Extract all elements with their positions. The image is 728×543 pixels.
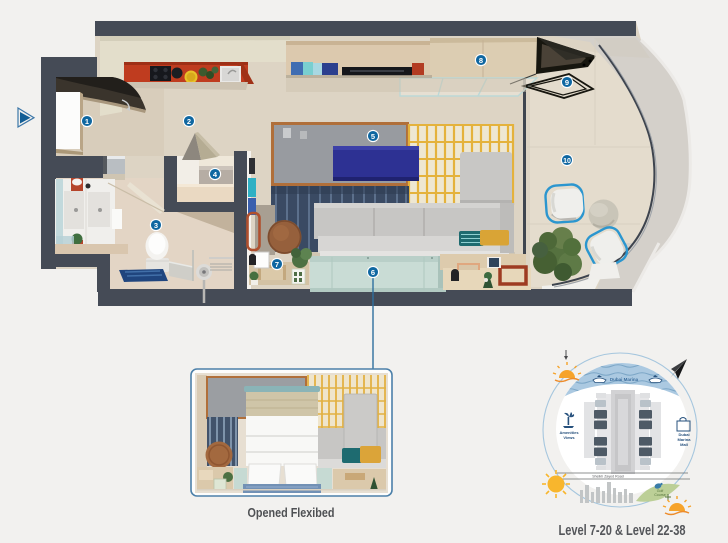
svg-text:Opened Flexibed: Opened Flexibed: [248, 506, 335, 520]
svg-text:9: 9: [565, 78, 569, 87]
svg-text:6: 6: [371, 268, 375, 277]
svg-text:Mall: Mall: [680, 442, 688, 447]
svg-text:5: 5: [371, 132, 375, 141]
svg-text:Views: Views: [563, 435, 575, 440]
svg-text:3: 3: [154, 221, 158, 230]
svg-text:10: 10: [563, 158, 571, 165]
svg-text:7: 7: [275, 260, 279, 269]
svg-text:1: 1: [85, 117, 89, 126]
svg-text:Level 7-20 & Level 22-38: Level 7-20 & Level 22-38: [559, 522, 686, 539]
svg-text:Sheikh Zayed Road: Sheikh Zayed Road: [592, 475, 624, 479]
svg-text:2: 2: [187, 117, 191, 126]
svg-text:8: 8: [479, 56, 483, 65]
svg-text:Course: Course: [654, 493, 666, 497]
svg-text:Dubai Marina: Dubai Marina: [610, 377, 639, 382]
